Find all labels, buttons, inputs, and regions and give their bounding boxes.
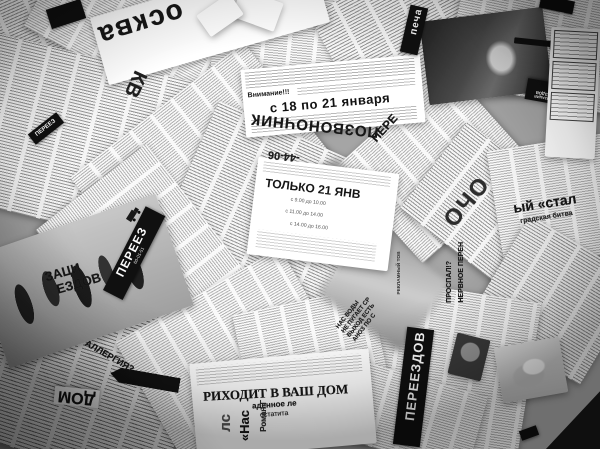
newspaper-collage-photo: ПЕРЕЕЗ ОРГАНИЗАЦИЯ ПЕРЕЕЗДОВ Внимание!!!… xyxy=(0,0,600,449)
text-lines xyxy=(255,229,376,261)
ad-box xyxy=(550,92,595,122)
shadow-wedge xyxy=(545,388,600,449)
vertical-prospal: ПРОСПАЛ!? НЕРВНОЕ ПЕРЕН xyxy=(446,242,465,307)
nas-text: «Нас xyxy=(238,410,251,441)
ad-box xyxy=(551,61,596,91)
vertical-ls: лс xyxy=(218,414,233,436)
masthead-text: печа xyxy=(408,7,425,36)
prospal-text: ПРОСПАЛ!? xyxy=(446,261,453,303)
vertical-roman: Роман Г xyxy=(260,400,268,436)
classified-ads-column xyxy=(545,27,600,159)
attention-label: Внимание!!! xyxy=(247,89,289,100)
ls-text: лс xyxy=(218,414,233,432)
ad-box xyxy=(553,30,598,60)
sketch-photo xyxy=(494,337,569,404)
schedule-line-2: с 11.00 до 14.00 xyxy=(285,209,323,219)
schedule-line-1: с 9.00 до 10.00 xyxy=(290,197,326,206)
nervnoe-text: НЕРВНОЕ ПЕРЕН xyxy=(458,242,465,303)
schedule-line-3: с 14.00 до 16.00 xyxy=(290,222,328,232)
vertical-nas: «Нас xyxy=(238,410,251,445)
only-jan21-ad: ТОЛЬКО 21 ЯНВ с 9.00 до 10.00 с 11.00 до… xyxy=(247,157,400,272)
roman-text: Роман Г xyxy=(260,400,268,432)
moving-vertical-text: ПЕРЕЕЗДОВ xyxy=(402,331,428,422)
vertical-reklamny-text: РЕКЛАМНЫЙ ТОВ xyxy=(397,251,402,294)
vertical-reklamny: РЕКЛАМНЫЙ ТОВ xyxy=(396,246,402,304)
